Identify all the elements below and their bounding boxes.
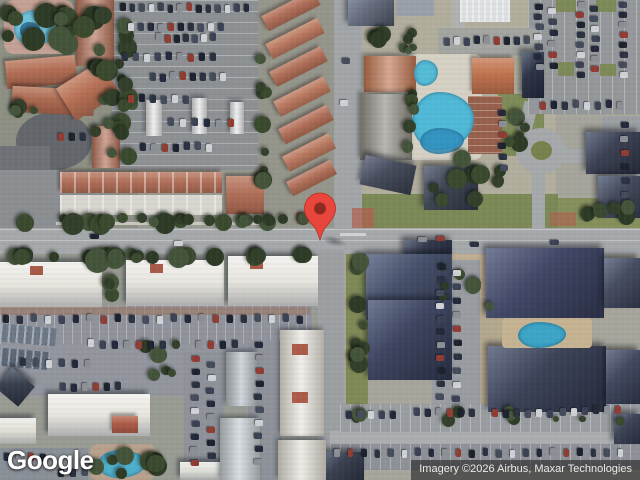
car-icon: [617, 102, 623, 110]
car-icon: [215, 5, 221, 13]
car-icon: [523, 449, 529, 457]
trees-whiterow-gap: [102, 258, 126, 306]
car-icon: [139, 94, 145, 102]
tree-icon: [254, 116, 271, 133]
car-icon: [112, 341, 118, 349]
tree-icon: [10, 105, 21, 116]
tree-icon: [453, 150, 471, 168]
location-pin-icon[interactable]: [303, 192, 337, 242]
car-icon: [429, 449, 435, 457]
cars-nelot-col5: [618, 2, 630, 92]
tree-icon: [116, 468, 127, 479]
car-icon: [101, 316, 107, 324]
cars-nelot-col2: [548, 8, 560, 84]
car-icon: [535, 4, 543, 10]
brick-path-1: [352, 208, 374, 228]
car-icon: [536, 24, 544, 30]
car-icon: [453, 284, 461, 290]
car-icon: [155, 53, 161, 61]
car-icon: [59, 316, 65, 324]
car-icon: [183, 34, 189, 42]
car-icon: [436, 303, 444, 309]
car-icon: [436, 236, 445, 241]
car-icon: [437, 329, 445, 335]
tree-icon: [183, 214, 194, 225]
car-icon: [128, 95, 134, 103]
car-icon: [576, 12, 584, 18]
car-icon: [590, 6, 598, 12]
car-icon: [80, 133, 86, 141]
car-icon: [591, 46, 599, 52]
tree-icon: [429, 183, 438, 192]
car-icon: [470, 242, 479, 247]
car-icon: [178, 23, 184, 31]
car-icon: [210, 33, 216, 41]
car-icon: [453, 382, 461, 388]
car-icon: [210, 53, 216, 61]
car-icon: [618, 449, 624, 457]
car-icon: [564, 449, 570, 457]
bldg-top-center-dark: [348, 0, 394, 26]
car-icon: [534, 14, 542, 20]
cars-northlot-row1: [120, 3, 263, 15]
car-icon: [591, 66, 599, 72]
bldg-west-white: [0, 418, 36, 444]
car-icon: [192, 118, 198, 126]
car-icon: [136, 341, 142, 349]
cars-road-east-3: [550, 240, 574, 252]
car-icon: [168, 23, 174, 31]
car-icon: [514, 409, 520, 417]
car-icon: [390, 411, 396, 419]
car-icon: [500, 165, 508, 171]
car-icon: [180, 119, 186, 127]
car-icon: [207, 427, 215, 433]
car-icon: [525, 410, 531, 418]
car-icon: [619, 42, 627, 48]
car-icon: [254, 433, 262, 439]
tree-icon: [16, 214, 34, 232]
car-icon: [590, 16, 598, 22]
car-icon: [619, 2, 627, 8]
car-icon: [453, 298, 461, 304]
tree-icon: [204, 215, 216, 227]
car-icon: [171, 314, 177, 322]
car-icon: [414, 408, 420, 416]
car-icon: [148, 23, 154, 31]
car-icon: [297, 316, 303, 324]
dormer-row-1: [30, 266, 43, 275]
car-icon: [425, 409, 431, 417]
car-icon: [190, 73, 196, 81]
car-icon: [452, 396, 460, 402]
car-icon: [549, 19, 557, 25]
car-icon: [540, 102, 546, 110]
car-icon: [453, 326, 461, 332]
car-icon: [550, 240, 559, 245]
car-icon: [3, 315, 9, 323]
tree-icon: [471, 165, 490, 184]
car-icon: [216, 120, 222, 128]
car-icon: [156, 33, 162, 41]
tree-icon: [253, 215, 261, 223]
car-icon: [418, 237, 427, 242]
cars-vroad-north: [340, 58, 352, 152]
car-icon: [188, 54, 194, 62]
car-icon: [130, 4, 136, 12]
car-icon: [115, 314, 121, 322]
car-icon: [170, 72, 176, 80]
car-icon: [255, 446, 263, 452]
car-icon: [620, 72, 628, 78]
bldg-clubhouse-orange-2: [472, 58, 514, 94]
cars-southwest-row1: [3, 314, 321, 326]
car-icon: [160, 341, 166, 349]
car-icon: [483, 448, 489, 456]
car-icon: [454, 37, 460, 45]
car-icon: [256, 355, 264, 361]
car-icon: [191, 434, 199, 440]
attribution-bar: Imagery ©2026 Airbus, Maxar Technologies: [411, 460, 640, 480]
car-icon: [368, 411, 374, 419]
cars-northlot-row5: [150, 72, 240, 84]
cars-southwest-row2: [88, 339, 182, 351]
car-icon: [346, 411, 352, 419]
car-icon: [484, 36, 490, 44]
car-icon: [576, 42, 584, 48]
car-icon: [177, 4, 183, 12]
car-icon: [548, 8, 556, 14]
tree-icon: [359, 321, 368, 330]
car-icon: [124, 341, 130, 349]
car-icon: [604, 406, 610, 414]
cars-southeast-lane2: [452, 270, 464, 420]
bldg-se-b-east-2: [606, 350, 640, 404]
trees-townhome-column: [254, 0, 272, 200]
car-icon: [139, 4, 145, 12]
car-icon: [444, 38, 450, 46]
cars-southwest-lane1: [190, 356, 202, 480]
car-icon: [453, 270, 461, 276]
tree-icon: [73, 16, 95, 38]
car-icon: [196, 5, 202, 13]
bldg-white-bottom: [278, 440, 326, 480]
cars-southwest-row3: [196, 340, 254, 352]
car-icon: [174, 241, 183, 246]
car-icon: [45, 316, 51, 324]
car-icon: [207, 440, 215, 446]
cars-nelot-bottom: [540, 100, 638, 112]
tree-icon: [137, 213, 147, 223]
car-icon: [453, 368, 461, 374]
car-icon: [143, 316, 149, 324]
car-icon: [46, 360, 52, 368]
cars-road-east-1: [418, 235, 464, 247]
tree-icon: [352, 253, 370, 271]
satellite-map[interactable]: Google Imagery ©2026 Airbus, Maxar Techn…: [0, 0, 640, 480]
car-icon: [548, 41, 556, 47]
car-icon: [454, 354, 462, 360]
car-icon: [225, 5, 231, 13]
tree-icon: [255, 54, 266, 65]
car-icon: [474, 36, 480, 44]
dormer-row-2: [150, 264, 163, 273]
car-icon: [498, 143, 506, 149]
cars-northlot-row8: [140, 142, 227, 154]
car-icon: [208, 453, 216, 459]
car-icon: [174, 35, 180, 43]
car-icon: [534, 54, 542, 60]
car-icon: [375, 450, 381, 458]
car-icon: [20, 358, 26, 366]
car-icon: [620, 136, 628, 142]
car-icon: [184, 142, 190, 150]
tree-icon: [593, 203, 608, 218]
cars-northlot-row3: [156, 33, 229, 45]
trees-roadside-north: [0, 213, 330, 227]
google-logo[interactable]: Google: [7, 445, 94, 476]
car-icon: [437, 316, 445, 322]
car-icon: [577, 32, 585, 38]
car-icon: [571, 408, 577, 416]
car-icon: [415, 448, 421, 456]
car-icon: [161, 96, 167, 104]
car-icon: [499, 132, 507, 138]
tree-icon: [14, 249, 30, 265]
car-icon: [550, 63, 558, 69]
cars-southeast-bottom: [334, 448, 640, 460]
car-icon: [133, 53, 139, 61]
car-icon: [90, 234, 99, 239]
bldg-clubhouse-orange-1: [364, 56, 416, 92]
car-icon: [621, 122, 629, 128]
cars-nelot-col3: [576, 2, 588, 92]
tree-icon: [409, 104, 420, 115]
island-ne-3: [558, 62, 574, 76]
car-icon: [213, 315, 219, 323]
cars-road-west-2: [174, 240, 198, 252]
car-icon: [256, 407, 264, 413]
cars-southwest-row5: [60, 382, 136, 394]
car-icon: [210, 73, 216, 81]
car-icon: [191, 395, 199, 401]
car-icon: [577, 22, 585, 28]
dormer-mid: [112, 416, 138, 433]
car-icon: [438, 264, 446, 270]
car-icon: [447, 409, 453, 417]
car-icon: [255, 420, 263, 426]
car-icon: [150, 95, 156, 103]
tree-icon: [22, 27, 45, 50]
car-icon: [201, 34, 207, 42]
tree-icon: [520, 123, 529, 132]
car-icon: [191, 408, 199, 414]
car-icon: [87, 314, 93, 322]
car-icon: [192, 356, 200, 362]
car-icon: [191, 460, 199, 466]
car-icon: [192, 421, 200, 427]
car-icon: [72, 360, 78, 368]
car-icon: [536, 64, 544, 70]
car-icon: [207, 362, 215, 368]
car-icon: [165, 35, 171, 43]
car-icon: [388, 449, 394, 457]
car-icon: [456, 449, 462, 457]
tree-icon: [116, 447, 134, 465]
cars-southwest-col: [254, 342, 266, 480]
car-icon: [620, 32, 628, 38]
cars-culdesac: [58, 132, 101, 144]
car-icon: [115, 382, 121, 390]
car-icon: [619, 22, 627, 28]
car-icon: [198, 24, 204, 32]
tree-icon: [168, 369, 176, 377]
tree-icon: [146, 251, 159, 264]
car-icon: [208, 341, 214, 349]
car-icon: [218, 23, 224, 31]
car-icon: [622, 178, 630, 184]
car-icon: [160, 74, 166, 82]
car-icon: [576, 62, 584, 68]
car-icon: [183, 96, 189, 104]
cars-se-bays-3: [492, 408, 568, 420]
road-culdesac-stem: [0, 146, 50, 170]
tree-icon: [2, 30, 14, 42]
car-icon: [549, 52, 557, 58]
tree-icon: [447, 169, 467, 189]
car-icon: [357, 410, 363, 418]
car-icon: [498, 110, 506, 116]
tree-icon: [148, 369, 160, 381]
tree-icon: [250, 248, 266, 264]
car-icon: [207, 414, 215, 420]
car-icon: [524, 36, 530, 44]
car-icon: [140, 143, 146, 151]
bldg-whiterow-a: [0, 262, 102, 308]
cars-se-bays-1: [346, 410, 411, 422]
car-icon: [150, 73, 156, 81]
car-icon: [619, 12, 627, 18]
tree-icon: [402, 141, 414, 153]
car-icon: [536, 409, 542, 417]
dormer-vert-2: [292, 392, 308, 403]
car-icon: [122, 53, 128, 61]
tree-icon: [278, 214, 288, 224]
car-icon: [188, 23, 194, 31]
car-icon: [241, 315, 247, 323]
island-ne-4: [600, 64, 616, 76]
car-icon: [168, 118, 174, 126]
car-icon: [199, 53, 205, 61]
car-icon: [255, 314, 261, 322]
car-icon: [621, 192, 629, 198]
car-icon: [93, 383, 99, 391]
car-icon: [157, 316, 163, 324]
car-icon: [208, 375, 216, 381]
bldg-clubhouse-white: [460, 0, 510, 22]
car-icon: [504, 37, 510, 45]
car-icon: [190, 447, 198, 453]
car-icon: [187, 3, 193, 11]
tree-icon: [261, 148, 269, 156]
tree-icon: [467, 191, 483, 207]
cars-southeast-lane1: [436, 264, 448, 417]
rowhouses-white: [60, 195, 222, 215]
car-icon: [591, 56, 599, 62]
car-icon: [31, 314, 37, 322]
car-icon: [172, 95, 178, 103]
tree-icon: [8, 11, 23, 26]
car-icon: [438, 277, 446, 283]
car-icon: [85, 360, 91, 368]
tree-icon: [99, 214, 115, 230]
attribution-text: Imagery ©2026 Airbus, Maxar Technologies: [419, 463, 632, 475]
car-icon: [577, 52, 585, 58]
car-icon: [206, 5, 212, 13]
tree-icon: [106, 280, 114, 288]
car-icon: [162, 144, 168, 152]
car-icon: [256, 381, 264, 387]
car-icon: [560, 408, 566, 416]
car-icon: [591, 449, 597, 457]
cars-southwest-lane2: [206, 362, 218, 476]
car-icon: [129, 315, 135, 323]
car-icon: [158, 24, 164, 32]
tree-icon: [465, 277, 481, 293]
car-icon: [454, 340, 462, 346]
car-icon: [60, 383, 66, 391]
tree-icon: [405, 47, 412, 54]
cars-clubhouse-row: [444, 36, 544, 48]
car-icon: [436, 408, 442, 416]
cars-northlot-row4: [122, 52, 231, 64]
car-icon: [494, 37, 500, 45]
car-icon: [244, 4, 250, 12]
car-icon: [168, 5, 174, 13]
car-icon: [234, 4, 240, 12]
crosswalk-intersection: [340, 233, 366, 236]
car-icon: [254, 394, 262, 400]
cars-southwest-row4: [20, 358, 108, 370]
car-icon: [254, 459, 262, 465]
car-icon: [88, 339, 94, 347]
car-icon: [208, 23, 214, 31]
trees-northwest-pool: [0, 0, 112, 58]
car-icon: [206, 144, 212, 152]
car-icon: [503, 410, 509, 418]
car-icon: [120, 3, 126, 11]
tree-icon: [115, 126, 129, 140]
trees-culdesac-north: [0, 98, 40, 118]
car-icon: [220, 341, 226, 349]
car-icon: [584, 102, 590, 110]
car-icon: [69, 133, 75, 141]
bldg-se-b-east-1: [604, 258, 640, 308]
car-icon: [595, 102, 601, 110]
car-icon: [438, 368, 446, 374]
tree-icon: [608, 202, 621, 215]
car-icon: [492, 409, 498, 417]
tree-icon: [62, 213, 84, 235]
car-icon: [442, 449, 448, 457]
cars-nelot-col4: [590, 6, 602, 86]
tree-icon: [49, 252, 60, 263]
car-icon: [577, 448, 583, 456]
car-icon: [469, 409, 475, 417]
bldg-top-center-gray: [396, 0, 434, 16]
car-icon: [464, 38, 470, 46]
car-icon: [551, 101, 557, 109]
